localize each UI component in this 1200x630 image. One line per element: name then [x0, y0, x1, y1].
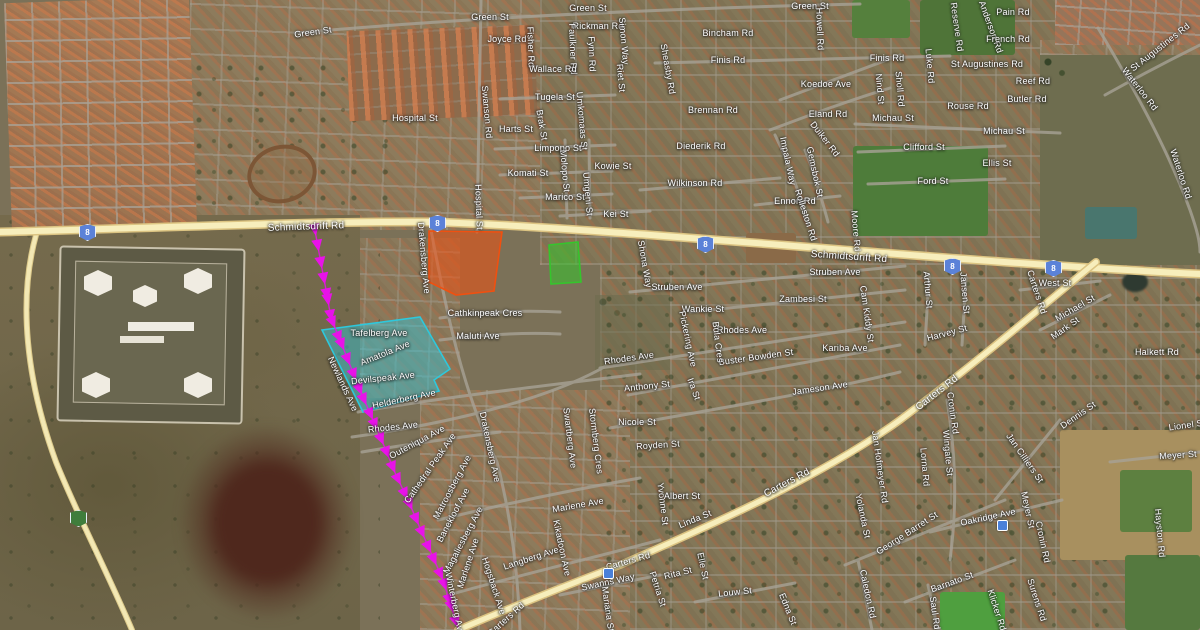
route-shield — [70, 510, 87, 527]
street-label: Harvey St — [926, 323, 968, 343]
street-label: Stormberg Cres — [587, 407, 605, 474]
street-label: Outeniqua Ave — [388, 423, 447, 461]
route-arrowhead — [335, 337, 350, 352]
street-label: Brennan Rd — [688, 105, 738, 115]
highlight-area-green — [549, 242, 581, 284]
highlight-area-orange — [429, 231, 502, 295]
highlight-area-cyan — [322, 317, 450, 412]
prison-building — [120, 336, 164, 343]
township-grid — [4, 0, 197, 231]
street-label: Wankie St — [682, 304, 724, 314]
green-field — [920, 0, 1015, 55]
route-arrowhead — [357, 392, 372, 407]
street-label: Marico St — [545, 192, 585, 202]
street-label: Hogsback Ave — [480, 556, 508, 616]
street-label: Kei St — [603, 209, 628, 219]
route-line — [314, 225, 458, 628]
route-arrowhead — [398, 486, 413, 502]
street-label: Molopo St — [558, 149, 572, 192]
street-label: Devilspeak Ave — [351, 370, 416, 387]
street-label: French Rd — [986, 34, 1030, 44]
street-label: Fynn Rd — [586, 36, 597, 72]
street-label: Halkett Rd — [1135, 347, 1179, 357]
street-label: Yolanda St — [853, 493, 872, 539]
street-label: Schmidtsdrift Rd — [268, 220, 345, 234]
street-label: Carters Rd — [914, 373, 960, 413]
street-label: Tugela St — [535, 92, 575, 102]
street-label: Amatola Ave — [359, 339, 411, 368]
street-label: Waterloo Rd — [1120, 65, 1160, 112]
street-label: Ira St — [685, 377, 702, 402]
route-arrowhead — [314, 256, 327, 270]
annotation-layer — [0, 0, 1200, 630]
building-block — [746, 233, 796, 263]
street-label: Wallace Rd — [529, 64, 577, 74]
prison-block — [184, 268, 212, 294]
street-label: Hayston Rd — [1153, 508, 1167, 558]
prison-block — [84, 270, 112, 296]
street-label: Koedoe Ave — [801, 79, 851, 89]
route-arrowhead — [374, 432, 389, 447]
route-arrowhead — [442, 593, 456, 608]
street-label: Rhodes Ave — [717, 325, 767, 335]
route-shield: 8 — [697, 236, 714, 253]
veld-texture — [0, 215, 380, 630]
route-arrowhead — [311, 239, 324, 253]
green-field — [1120, 470, 1192, 532]
prison-building — [128, 322, 194, 331]
street-label: Harts St — [499, 124, 533, 134]
street-label: West St — [1039, 278, 1072, 288]
street-label: Wilkinson Rd — [668, 178, 723, 188]
map-canvas[interactable]: Green StGreen StGreen StGreen StJoyce Rd… — [0, 0, 1200, 630]
route-arrowhead — [352, 382, 367, 397]
prison-block — [133, 285, 157, 307]
street-label: Edna St — [777, 592, 799, 627]
suburb-block — [540, 0, 1060, 265]
street-label: Jan Hofmeyer Rd — [870, 430, 890, 504]
street-label: Cathedral Peak Ave — [402, 431, 458, 505]
trees-overlay — [190, 60, 390, 230]
street-label: Butler Rd — [1007, 94, 1046, 104]
route-arrowhead — [368, 417, 383, 432]
street-label: Howell Rd — [814, 7, 825, 50]
street-label: Cronin Rd — [945, 391, 961, 434]
street-label: Klicker Rd — [986, 588, 1009, 630]
road-network — [0, 0, 1200, 630]
street-label: Barnato St — [929, 570, 974, 595]
street-label: Jansen St — [958, 272, 972, 315]
street-label: Saul Rd — [928, 596, 943, 630]
route-arrowhead — [391, 472, 406, 488]
street-label: Cathkinpeak Cres — [448, 308, 523, 318]
route-arrowhead — [427, 552, 442, 567]
dirt-field — [1060, 430, 1200, 560]
street-label: Royden St — [636, 438, 680, 451]
route-arrowhead — [403, 497, 418, 512]
green-field — [852, 0, 910, 38]
street-label: Jameson Ave — [792, 379, 849, 397]
route-arrowhead — [320, 287, 333, 301]
route-shield: 8 — [1045, 260, 1062, 277]
street-label: Reserve Rd — [949, 2, 966, 52]
street-label: Simon Way — [617, 17, 631, 65]
street-label: Matroosberg Ave — [431, 453, 473, 520]
route-arrowhead — [340, 352, 355, 367]
street-label: Wingate St — [941, 430, 955, 477]
street-label: Surens Rd — [1025, 577, 1048, 622]
street-label: Albert St — [664, 491, 700, 501]
street-label: Ellis St — [982, 158, 1011, 168]
hospital-complex — [346, 25, 537, 122]
street-label: Nind St — [874, 73, 887, 105]
street-label: Sheasby Rd — [659, 43, 678, 95]
street-label: Meyer St — [1019, 491, 1037, 530]
route-arrowhead — [415, 525, 430, 540]
route-arrowhead — [449, 615, 463, 630]
street-label: Meyer St — [1159, 449, 1197, 462]
street-label: Riet St — [615, 63, 627, 92]
street-label: Diederik Rd — [676, 141, 725, 151]
street-label: Lorna Rd — [918, 447, 931, 486]
street-label: Michael St — [1053, 293, 1096, 324]
street-label: Green St — [569, 3, 607, 13]
street-label: Eland Rd — [809, 109, 848, 119]
poi-marker — [997, 520, 1008, 531]
street-label: Schmidtsdrift Rd — [810, 249, 887, 265]
route-arrowhead — [347, 367, 362, 382]
street-label-layer: Green StGreen StGreen StGreen StJoyce Rd… — [0, 0, 1200, 630]
street-label: Kikadoon Ave — [551, 519, 573, 577]
street-label: Drakensberg Ave — [416, 222, 432, 294]
street-label: Swanns Way — [580, 571, 635, 592]
street-label: Gemsbok St — [805, 146, 825, 198]
route-shield: 8 — [79, 224, 96, 241]
street-label: Umgeni St — [581, 172, 595, 217]
street-label: Pickering Ave — [677, 310, 699, 368]
street-label: Rouse Rd — [947, 101, 989, 111]
street-label: Mariana St — [600, 586, 616, 630]
street-label: Waterloo Rd — [1168, 148, 1194, 200]
street-label: Mark St — [1049, 315, 1081, 342]
street-label: Rhodes Ave — [367, 419, 418, 434]
street-label: St Augustines Rd — [951, 59, 1023, 69]
street-label: Swanson Rd — [480, 85, 495, 139]
open-veld — [0, 215, 360, 630]
street-label: Bincham Rd — [702, 28, 753, 38]
street-label: Zambesi St — [779, 294, 827, 304]
street-label: Green St — [791, 1, 829, 11]
street-label: Finis Rd — [711, 55, 746, 65]
street-label: Lionel St — [1168, 417, 1200, 432]
street-label: Marlene Ave — [455, 537, 481, 590]
street-label: Duiker Rd — [808, 119, 842, 158]
street-label: Yvonne St — [655, 482, 670, 526]
street-label: Komati St — [508, 168, 549, 178]
route-arrowhead — [433, 567, 448, 582]
prison-yard — [73, 261, 227, 406]
street-label: Langberg Ave — [502, 544, 560, 571]
street-label: Banekloof Ave — [435, 486, 472, 544]
street-label: Cam Kiddy St — [858, 285, 876, 343]
street-label: Ennon Rd — [774, 196, 816, 206]
street-label: Tafelberg Ave — [351, 328, 408, 338]
street-label: Magaliesberg Ave — [441, 505, 485, 576]
street-label: Elle St — [695, 552, 710, 581]
street-label: Sholl Rd — [893, 71, 906, 107]
route-shield: 8 — [944, 258, 961, 275]
route-arrowhead — [324, 309, 337, 323]
route-arrowhead — [326, 315, 341, 330]
green-field — [1125, 555, 1200, 630]
street-label: Faulkner Rd — [567, 23, 579, 75]
street-label: Struben Ave — [651, 282, 702, 292]
street-label: Ford St — [918, 176, 949, 186]
suburb-block — [1040, 40, 1200, 130]
burnt-veld — [175, 415, 360, 630]
street-label: Carters Rd — [605, 550, 652, 572]
tennis-courts — [1085, 207, 1137, 239]
street-label: Drakensberg Ave — [478, 411, 503, 483]
street-label: Clifford St — [903, 142, 945, 152]
street-label: Rhodes Ave — [603, 350, 654, 367]
street-label: Marlene Ave — [551, 496, 604, 515]
street-label: Rolleston Rd — [793, 188, 819, 242]
street-label: Michau St — [983, 126, 1025, 136]
street-label: Oakridge Ave — [959, 506, 1016, 527]
route-arrowhead — [308, 223, 321, 237]
woodland — [1040, 55, 1200, 265]
street-label: Michau St — [872, 113, 914, 123]
street-label: Struben Ave — [809, 267, 860, 277]
street-label: Arthur St — [921, 271, 934, 309]
township-grid — [1055, 0, 1200, 45]
poi-marker — [603, 568, 614, 579]
street-label: Hospital St — [392, 113, 438, 123]
street-label: Limpopo St — [534, 143, 582, 153]
street-label: Brak St — [534, 109, 549, 141]
street-label: Newlands Ave — [326, 355, 360, 413]
route-shield: 8 — [429, 215, 446, 232]
street-label: Anthony St — [624, 379, 671, 394]
street-label: Fisher Rd — [525, 26, 536, 67]
street-label: Carters Rd — [1025, 269, 1049, 315]
route-arrowhead — [444, 599, 458, 614]
street-label: Rita St — [663, 565, 693, 582]
street-label: Maluti Ave — [456, 331, 499, 341]
route-arrowhead — [321, 293, 334, 307]
dam — [1122, 272, 1148, 292]
street-label: Carters Rd — [762, 466, 812, 499]
route-arrowhead — [409, 512, 424, 527]
street-label: Louw St — [718, 585, 753, 598]
street-label: Rickman Rd — [572, 21, 623, 31]
street-label: Moore Rd — [849, 210, 863, 252]
oval-track — [241, 137, 323, 210]
route-arrowhead — [363, 407, 378, 422]
prison-compound — [56, 245, 245, 424]
street-label: Joyce Rd — [487, 34, 526, 44]
street-label: Shona Way — [636, 239, 654, 288]
street-label: Petria St — [648, 570, 669, 608]
street-label: Luke Rd — [923, 48, 936, 84]
street-label: George Barret St — [874, 509, 939, 556]
route-arrowhead — [317, 272, 330, 286]
street-label: Carters Rd — [486, 600, 527, 630]
street-label: Hospital St — [473, 184, 485, 230]
route-arrowhead — [437, 577, 451, 592]
route-arrowhead — [332, 330, 347, 345]
street-label: Anderson Rd — [977, 0, 1005, 54]
street-label: Winterberg Ave — [443, 572, 466, 630]
terrain-layer — [0, 0, 1200, 630]
street-label: Kariba Ave — [822, 343, 867, 353]
street-label: Buster Bowden St — [718, 347, 794, 367]
street-label: Kowie St — [594, 161, 631, 171]
route-arrowhead — [380, 445, 395, 460]
suburb-block — [190, 0, 540, 230]
street-label: Finis Rd — [870, 53, 905, 63]
sports-pitch — [940, 592, 1005, 630]
street-label: Jan Cilliers St — [1004, 431, 1045, 484]
sports-field — [853, 146, 988, 236]
street-label: Helderberg Ave — [371, 387, 436, 410]
street-label: Green St — [471, 12, 509, 22]
street-label: Nicole St — [618, 417, 656, 427]
street-label: Caledon Rd — [858, 569, 878, 620]
street-label: Bula Cres — [711, 321, 726, 363]
street-label: Reef Rd — [1016, 76, 1050, 86]
suburb-block — [300, 238, 460, 398]
prison-block — [184, 372, 212, 398]
street-label: Green St — [294, 24, 333, 39]
street-label: Pain Rd — [996, 7, 1029, 17]
suburb-block — [420, 390, 630, 630]
dirt-block — [595, 295, 670, 370]
street-label: St Augustines Rd — [1128, 21, 1191, 73]
suburb-block — [600, 265, 1200, 630]
route-arrowhead — [386, 460, 401, 475]
prison-block — [82, 372, 110, 398]
street-label: Cronin Rd — [1034, 520, 1053, 563]
street-label: Impala Way — [778, 136, 798, 186]
street-label: Linda St — [677, 508, 713, 530]
street-label: Swartberg Ave — [561, 407, 578, 469]
trees-overlay — [600, 265, 1200, 630]
street-label: Umkomaas St — [574, 91, 589, 150]
street-label: Dennis St — [1058, 399, 1097, 431]
route-arrowhead — [421, 539, 436, 554]
